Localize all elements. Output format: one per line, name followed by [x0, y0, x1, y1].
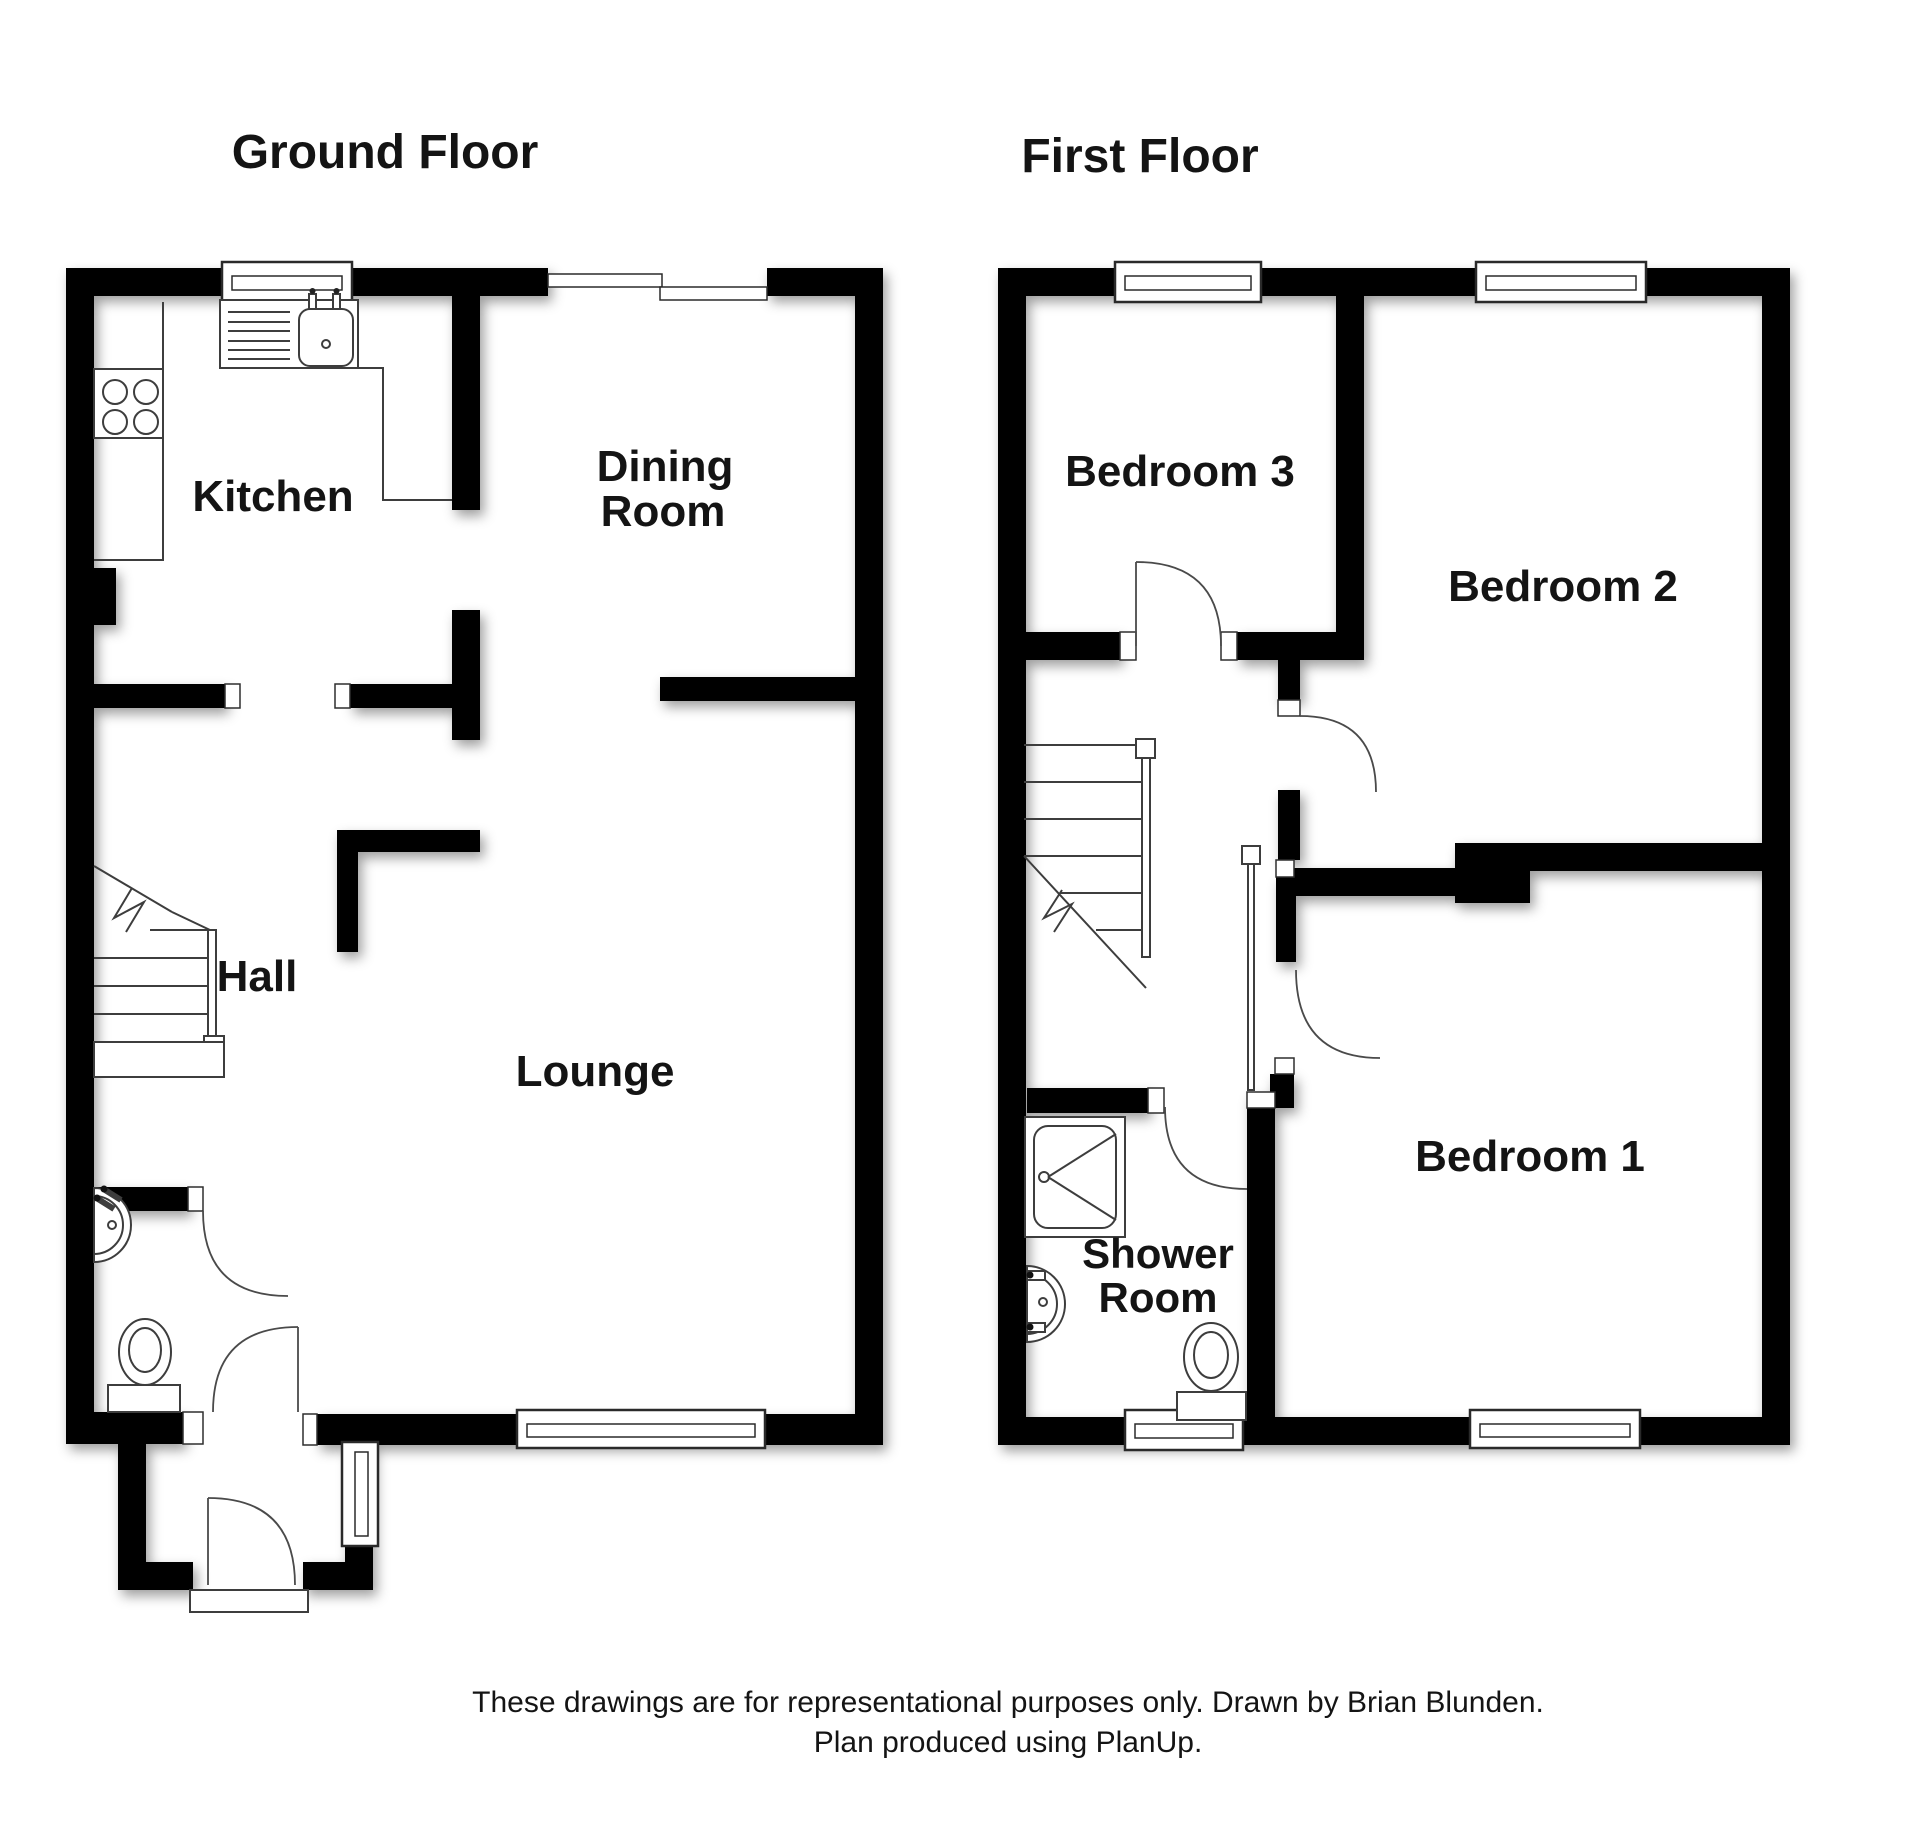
- tap-dot: [310, 288, 316, 294]
- window-glass: [355, 1452, 368, 1536]
- porch-window: [342, 1442, 378, 1546]
- stair-handrail: [208, 930, 216, 1038]
- door-swing-icon: [1165, 1107, 1247, 1189]
- bedroom1-door: [1296, 970, 1380, 1058]
- bedroom2-door: [1300, 716, 1376, 792]
- window-glass: [527, 1424, 755, 1437]
- landing-balustrade: [1248, 856, 1254, 1090]
- wc-door-jamb: [188, 1187, 203, 1211]
- stair-handrail: [1142, 745, 1150, 957]
- room-label-dining-2: Room: [601, 487, 726, 536]
- ground-floor-title: Ground Floor: [232, 126, 539, 179]
- bedroom3-door-jamb: [1120, 632, 1136, 660]
- hall-entrance-door: [213, 1327, 298, 1412]
- sliding-panel-icon: [660, 287, 767, 300]
- door-step: [190, 1590, 308, 1612]
- kitchen-doorway-jamb: [335, 684, 350, 708]
- kitchen-hob: [94, 369, 163, 438]
- bedroom3-door: [1136, 562, 1221, 646]
- newel-post: [1136, 739, 1155, 758]
- wc-fixtures: [94, 1186, 181, 1413]
- room-label-shower-2: Room: [1099, 1274, 1218, 1321]
- bottom-step: [94, 1042, 224, 1077]
- bedroom3-window: [1115, 262, 1261, 302]
- sliding-panel-icon: [548, 274, 662, 287]
- window-glass: [1480, 1424, 1630, 1437]
- door-swing-icon: [1136, 562, 1221, 646]
- room-label-bedroom1: Bedroom 1: [1415, 1132, 1645, 1181]
- kitchen-sink-unit: [220, 288, 358, 368]
- shower-door-jamb: [1148, 1088, 1164, 1113]
- newel-post: [1242, 846, 1260, 864]
- bedroom2-door-jamb: [1278, 700, 1300, 716]
- tap-icon: [309, 294, 316, 309]
- ground-floor-plan: [66, 262, 883, 1612]
- window-glass: [1125, 276, 1251, 290]
- shower-door-jamb: [1247, 1092, 1275, 1108]
- tap-dot: [334, 288, 340, 294]
- room-label-lounge: Lounge: [516, 1047, 675, 1096]
- kitchen-doorway-jamb: [225, 684, 240, 708]
- tap-icon: [333, 294, 340, 309]
- window-glass: [1486, 276, 1636, 290]
- room-label-shower-1: Shower: [1082, 1230, 1234, 1277]
- toilet-cistern: [108, 1385, 180, 1412]
- stair-treads: [1024, 745, 1146, 988]
- dining-sliding-door: [548, 274, 767, 300]
- disclaimer-line-2: Plan produced using PlanUp.: [814, 1726, 1203, 1759]
- door-swing-icon: [1296, 970, 1380, 1058]
- bedroom2-window: [1476, 262, 1646, 302]
- door-swing-icon: [208, 1498, 295, 1585]
- bedroom3-door-jamb: [1221, 632, 1237, 660]
- hall-door-jamb: [303, 1414, 317, 1445]
- shower-room-door: [1165, 1107, 1247, 1189]
- door-swing-icon: [203, 1211, 288, 1296]
- window-glass: [232, 276, 342, 290]
- front-door: [190, 1498, 308, 1612]
- room-label-hall: Hall: [217, 952, 298, 1001]
- disclaimer-line-1: These drawings are for representational …: [472, 1686, 1544, 1719]
- door-swing-icon: [1300, 716, 1376, 792]
- hall-door-jamb: [183, 1412, 203, 1444]
- landing-jamb: [1276, 860, 1294, 877]
- toilet-icon: [1184, 1323, 1238, 1391]
- bedroom1-door-jamb: [1275, 1058, 1294, 1074]
- room-label-bedroom2: Bedroom 2: [1448, 562, 1678, 611]
- floor-plan-svg: Ground Floor First Floor Kitchen Dining …: [0, 0, 1920, 1824]
- bedroom1-window: [1470, 1410, 1640, 1448]
- door-swing-icon: [213, 1327, 298, 1412]
- tap-dot: [94, 1195, 101, 1202]
- room-label-bedroom3: Bedroom 3: [1065, 447, 1295, 496]
- toilet-cistern: [1177, 1392, 1246, 1420]
- lounge-window: [517, 1410, 765, 1448]
- wc-door: [203, 1211, 288, 1296]
- tap-dot: [101, 1186, 108, 1193]
- sink-bowl-icon: [299, 309, 353, 366]
- tap-dot: [1027, 1272, 1034, 1279]
- room-label-dining-1: Dining: [597, 442, 734, 491]
- window-glass: [1135, 1424, 1233, 1438]
- staircase-ground: [94, 866, 224, 1077]
- stair-treads: [94, 866, 210, 1014]
- first-floor-title: First Floor: [1021, 130, 1258, 183]
- room-label-kitchen: Kitchen: [192, 472, 353, 521]
- staircase-first: [1024, 739, 1260, 1090]
- tap-dot: [1027, 1324, 1034, 1331]
- floor-plan-page: Ground Floor First Floor Kitchen Dining …: [0, 0, 1920, 1824]
